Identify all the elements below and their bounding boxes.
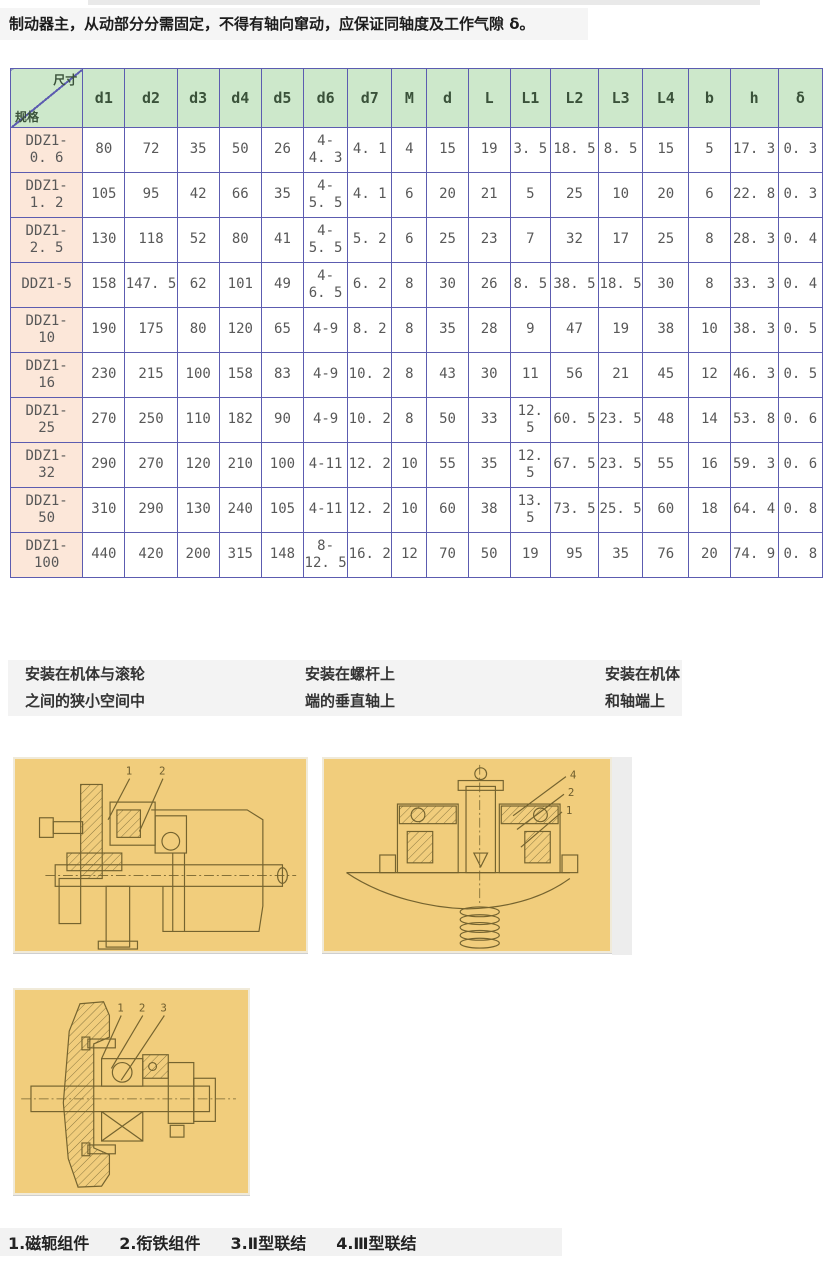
value-cell: 10. 2 <box>348 398 392 443</box>
column-header: d2 <box>125 69 177 128</box>
value-cell: 0. 4 <box>778 218 822 263</box>
value-cell: 315 <box>219 533 261 578</box>
value-cell: 10 <box>689 308 730 353</box>
caption-shaft-end: 安装在机体 和轴端上 <box>605 661 680 715</box>
spec-cell: DDZ1- 16 <box>11 353 83 398</box>
value-cell: 13. 5 <box>510 488 550 533</box>
value-cell: 21 <box>468 173 510 218</box>
value-cell: 190 <box>83 308 125 353</box>
value-cell: 80 <box>219 218 261 263</box>
spec-cell: DDZ1- 0. 6 <box>11 128 83 173</box>
column-header: d3 <box>177 69 219 128</box>
spec-cell: DDZ1- 32 <box>11 443 83 488</box>
value-cell: 110 <box>177 398 219 443</box>
value-cell: 215 <box>125 353 177 398</box>
value-cell: 11 <box>510 353 550 398</box>
value-cell: 48 <box>643 398 689 443</box>
column-header: L2 <box>550 69 598 128</box>
value-cell: 0. 6 <box>778 443 822 488</box>
value-cell: 158 <box>219 353 261 398</box>
value-cell: 38. 3 <box>730 308 778 353</box>
value-cell: 4- 5. 5 <box>304 173 348 218</box>
figure-shaft-end-mount: 1 2 3 <box>13 988 250 1195</box>
value-cell: 64. 4 <box>730 488 778 533</box>
value-cell: 5 <box>510 173 550 218</box>
caption-line: 和轴端上 <box>605 688 680 715</box>
value-cell: 158 <box>83 263 125 308</box>
value-cell: 8 <box>392 263 427 308</box>
value-cell: 76 <box>643 533 689 578</box>
value-cell: 22. 8 <box>730 173 778 218</box>
value-cell: 43 <box>427 353 468 398</box>
value-cell: 55 <box>427 443 468 488</box>
value-cell: 8 <box>392 308 427 353</box>
column-header: M <box>392 69 427 128</box>
value-cell: 16 <box>689 443 730 488</box>
value-cell: 8 <box>392 398 427 443</box>
technical-drawing-2: 4 2 1 <box>324 759 610 951</box>
value-cell: 6 <box>392 173 427 218</box>
figure1-label-2: 2 <box>159 765 165 778</box>
value-cell: 6 <box>392 218 427 263</box>
table-row: DDZ1-5158147. 562101494- 6. 56. 2830268.… <box>11 263 823 308</box>
value-cell: 19 <box>599 308 643 353</box>
value-cell: 10. 2 <box>348 353 392 398</box>
value-cell: 16. 2 <box>348 533 392 578</box>
value-cell: 35 <box>599 533 643 578</box>
value-cell: 53. 8 <box>730 398 778 443</box>
figure-roller-mount: 1 2 <box>13 757 308 953</box>
value-cell: 33. 3 <box>730 263 778 308</box>
value-cell: 182 <box>219 398 261 443</box>
value-cell: 17 <box>599 218 643 263</box>
column-header: L4 <box>643 69 689 128</box>
value-cell: 4 <box>392 128 427 173</box>
value-cell: 47 <box>550 308 598 353</box>
value-cell: 23. 5 <box>599 398 643 443</box>
value-cell: 10 <box>599 173 643 218</box>
dimension-table-wrap: 尺寸 规格 d1d2d3d4d5d6d7MdLL1L2L3L4bhδ DDZ1-… <box>10 68 823 578</box>
spec-cell: DDZ1- 25 <box>11 398 83 443</box>
value-cell: 12. 5 <box>510 398 550 443</box>
column-header: d5 <box>261 69 303 128</box>
figure-legend: 1.磁轭组件 2.衔铁组件 3.Ⅱ型联结 4.Ⅲ型联结 <box>0 1228 562 1256</box>
value-cell: 4. 1 <box>348 173 392 218</box>
value-cell: 4- 5. 5 <box>304 218 348 263</box>
table-row: DDZ1- 1019017580120654-98. 2835289471938… <box>11 308 823 353</box>
value-cell: 0. 8 <box>778 488 822 533</box>
table-row: DDZ1- 503102901302401054-1112. 210603813… <box>11 488 823 533</box>
value-cell: 38 <box>643 308 689 353</box>
value-cell: 90 <box>261 398 303 443</box>
value-cell: 12. 2 <box>348 443 392 488</box>
caption-roller-space: 安装在机体与滚轮 之间的狭小空间中 <box>25 661 145 715</box>
value-cell: 210 <box>219 443 261 488</box>
value-cell: 0. 3 <box>778 173 822 218</box>
value-cell: 38. 5 <box>550 263 598 308</box>
value-cell: 35 <box>468 443 510 488</box>
value-cell: 15 <box>643 128 689 173</box>
value-cell: 7 <box>510 218 550 263</box>
value-cell: 100 <box>177 353 219 398</box>
value-cell: 270 <box>125 443 177 488</box>
spec-cell: DDZ1-5 <box>11 263 83 308</box>
figure3-label-1: 1 <box>117 1002 123 1015</box>
value-cell: 74. 9 <box>730 533 778 578</box>
value-cell: 12. 5 <box>510 443 550 488</box>
column-header: L1 <box>510 69 550 128</box>
value-cell: 10 <box>392 488 427 533</box>
value-cell: 25 <box>643 218 689 263</box>
value-cell: 0. 6 <box>778 398 822 443</box>
value-cell: 83 <box>261 353 303 398</box>
value-cell: 8. 5 <box>599 128 643 173</box>
table-body: DDZ1- 0. 680723550264- 4. 34. 1415193. 5… <box>11 128 823 578</box>
value-cell: 25 <box>550 173 598 218</box>
column-header: δ <box>778 69 822 128</box>
value-cell: 59. 3 <box>730 443 778 488</box>
value-cell: 41 <box>261 218 303 263</box>
value-cell: 56 <box>550 353 598 398</box>
product-spec-page: 制动器主，从动部分分需固定，不得有轴向窜动，应保证同轴度及工作气隙 δ。 尺寸 … <box>0 0 825 1261</box>
figure2-label-4: 4 <box>570 769 576 782</box>
value-cell: 270 <box>83 398 125 443</box>
corner-header-cell: 尺寸 规格 <box>11 69 83 128</box>
value-cell: 8 <box>392 353 427 398</box>
value-cell: 60 <box>427 488 468 533</box>
value-cell: 26 <box>261 128 303 173</box>
value-cell: 25 <box>427 218 468 263</box>
value-cell: 33 <box>468 398 510 443</box>
value-cell: 5. 2 <box>348 218 392 263</box>
value-cell: 73. 5 <box>550 488 598 533</box>
value-cell: 4. 1 <box>348 128 392 173</box>
value-cell: 35 <box>427 308 468 353</box>
value-cell: 32 <box>550 218 598 263</box>
value-cell: 66 <box>219 173 261 218</box>
value-cell: 0. 5 <box>778 308 822 353</box>
table-row: DDZ1- 0. 680723550264- 4. 34. 1415193. 5… <box>11 128 823 173</box>
value-cell: 23. 5 <box>599 443 643 488</box>
value-cell: 15 <box>427 128 468 173</box>
value-cell: 80 <box>83 128 125 173</box>
figure1-label-1: 1 <box>126 765 132 778</box>
value-cell: 0. 8 <box>778 533 822 578</box>
value-cell: 25. 5 <box>599 488 643 533</box>
value-cell: 105 <box>83 173 125 218</box>
value-cell: 50 <box>468 533 510 578</box>
value-cell: 420 <box>125 533 177 578</box>
value-cell: 101 <box>219 263 261 308</box>
value-cell: 290 <box>125 488 177 533</box>
value-cell: 440 <box>83 533 125 578</box>
spec-cell: DDZ1- 50 <box>11 488 83 533</box>
value-cell: 30 <box>643 263 689 308</box>
dimension-table: 尺寸 规格 d1d2d3d4d5d6d7MdLL1L2L3L4bhδ DDZ1-… <box>10 68 823 578</box>
value-cell: 310 <box>83 488 125 533</box>
value-cell: 35 <box>177 128 219 173</box>
table-row: DDZ1- 1. 2105954266354- 5. 54. 162021525… <box>11 173 823 218</box>
value-cell: 60 <box>643 488 689 533</box>
value-cell: 3. 5 <box>510 128 550 173</box>
value-cell: 118 <box>125 218 177 263</box>
value-cell: 120 <box>219 308 261 353</box>
corner-label-spec: 规格 <box>15 108 39 125</box>
value-cell: 38 <box>468 488 510 533</box>
value-cell: 19 <box>468 128 510 173</box>
value-cell: 26 <box>468 263 510 308</box>
value-cell: 4-11 <box>304 443 348 488</box>
spec-cell: DDZ1- 2. 5 <box>11 218 83 263</box>
value-cell: 4- 6. 5 <box>304 263 348 308</box>
figure3-label-3: 3 <box>160 1002 166 1015</box>
top-divider <box>88 0 760 5</box>
value-cell: 5 <box>689 128 730 173</box>
intro-text: 制动器主，从动部分分需固定，不得有轴向窜动，应保证同轴度及工作气隙 δ。 <box>0 8 588 40</box>
caption-line: 之间的狭小空间中 <box>25 688 145 715</box>
column-header: d <box>427 69 468 128</box>
value-cell: 55 <box>643 443 689 488</box>
value-cell: 20 <box>689 533 730 578</box>
column-header: L3 <box>599 69 643 128</box>
value-cell: 4-11 <box>304 488 348 533</box>
value-cell: 50 <box>427 398 468 443</box>
legend-item-yoke: 1.磁轭组件 <box>8 1230 89 1254</box>
column-header: d1 <box>83 69 125 128</box>
value-cell: 0. 4 <box>778 263 822 308</box>
value-cell: 0. 3 <box>778 128 822 173</box>
value-cell: 250 <box>125 398 177 443</box>
value-cell: 130 <box>177 488 219 533</box>
legend-item-armature: 2.衔铁组件 <box>119 1230 200 1254</box>
value-cell: 18. 5 <box>599 263 643 308</box>
value-cell: 8- 12. 5 <box>304 533 348 578</box>
value-cell: 8 <box>689 263 730 308</box>
value-cell: 30 <box>427 263 468 308</box>
technical-drawing-1: 1 2 <box>15 759 306 951</box>
value-cell: 95 <box>125 173 177 218</box>
value-cell: 105 <box>261 488 303 533</box>
value-cell: 70 <box>427 533 468 578</box>
value-cell: 50 <box>219 128 261 173</box>
value-cell: 30 <box>468 353 510 398</box>
value-cell: 12. 2 <box>348 488 392 533</box>
value-cell: 175 <box>125 308 177 353</box>
value-cell: 130 <box>83 218 125 263</box>
column-header: L <box>468 69 510 128</box>
value-cell: 4-9 <box>304 398 348 443</box>
value-cell: 200 <box>177 533 219 578</box>
table-row: DDZ1- 2. 51301185280414- 5. 55. 26252373… <box>11 218 823 263</box>
value-cell: 0. 5 <box>778 353 822 398</box>
value-cell: 72 <box>125 128 177 173</box>
value-cell: 35 <box>261 173 303 218</box>
header-row: 尺寸 规格 d1d2d3d4d5d6d7MdLL1L2L3L4bhδ <box>11 69 823 128</box>
figure3-label-2: 2 <box>139 1002 145 1015</box>
value-cell: 8. 5 <box>510 263 550 308</box>
table-row: DDZ1- 322902701202101004-1112. 210553512… <box>11 443 823 488</box>
value-cell: 65 <box>261 308 303 353</box>
figure2-label-1: 1 <box>566 804 572 817</box>
value-cell: 28 <box>468 308 510 353</box>
value-cell: 4-9 <box>304 353 348 398</box>
value-cell: 147. 5 <box>125 263 177 308</box>
caption-line: 安装在螺杆上 <box>305 661 395 688</box>
caption-line: 安装在机体与滚轮 <box>25 661 145 688</box>
technical-drawing-3: 1 2 3 <box>15 990 248 1193</box>
value-cell: 62 <box>177 263 219 308</box>
figure2-label-2: 2 <box>568 786 574 799</box>
value-cell: 28. 3 <box>730 218 778 263</box>
value-cell: 18 <box>689 488 730 533</box>
column-header: d4 <box>219 69 261 128</box>
value-cell: 20 <box>643 173 689 218</box>
value-cell: 23 <box>468 218 510 263</box>
legend-item-type3: 4.Ⅲ型联结 <box>336 1230 416 1254</box>
value-cell: 12 <box>392 533 427 578</box>
figure-screw-mount: 4 2 1 <box>322 757 612 953</box>
caption-line: 端的垂直轴上 <box>305 688 395 715</box>
value-cell: 17. 3 <box>730 128 778 173</box>
value-cell: 46. 3 <box>730 353 778 398</box>
table-row: DDZ1- 25270250110182904-910. 28503312. 5… <box>11 398 823 443</box>
value-cell: 6. 2 <box>348 263 392 308</box>
value-cell: 19 <box>510 533 550 578</box>
legend-item-type2: 3.Ⅱ型联结 <box>230 1230 306 1254</box>
value-cell: 120 <box>177 443 219 488</box>
spec-cell: DDZ1- 1. 2 <box>11 173 83 218</box>
value-cell: 45 <box>643 353 689 398</box>
value-cell: 95 <box>550 533 598 578</box>
value-cell: 18. 5 <box>550 128 598 173</box>
value-cell: 9 <box>510 308 550 353</box>
value-cell: 10 <box>392 443 427 488</box>
value-cell: 14 <box>689 398 730 443</box>
value-cell: 21 <box>599 353 643 398</box>
value-cell: 42 <box>177 173 219 218</box>
value-cell: 230 <box>83 353 125 398</box>
column-header: b <box>689 69 730 128</box>
value-cell: 100 <box>261 443 303 488</box>
column-header: h <box>730 69 778 128</box>
table-row: DDZ1- 1004404202003151488- 12. 516. 2127… <box>11 533 823 578</box>
spec-cell: DDZ1- 10 <box>11 308 83 353</box>
value-cell: 8. 2 <box>348 308 392 353</box>
corner-label-size: 尺寸 <box>53 71 77 88</box>
value-cell: 290 <box>83 443 125 488</box>
value-cell: 67. 5 <box>550 443 598 488</box>
value-cell: 52 <box>177 218 219 263</box>
value-cell: 240 <box>219 488 261 533</box>
table-row: DDZ1- 16230215100158834-910. 28433011562… <box>11 353 823 398</box>
figure-side-strip <box>612 757 632 955</box>
value-cell: 8 <box>689 218 730 263</box>
value-cell: 12 <box>689 353 730 398</box>
value-cell: 4-9 <box>304 308 348 353</box>
value-cell: 6 <box>689 173 730 218</box>
caption-line: 安装在机体 <box>605 661 680 688</box>
column-header: d7 <box>348 69 392 128</box>
column-header: d6 <box>304 69 348 128</box>
value-cell: 4- 4. 3 <box>304 128 348 173</box>
value-cell: 20 <box>427 173 468 218</box>
spec-cell: DDZ1- 100 <box>11 533 83 578</box>
value-cell: 60. 5 <box>550 398 598 443</box>
value-cell: 80 <box>177 308 219 353</box>
value-cell: 49 <box>261 263 303 308</box>
value-cell: 148 <box>261 533 303 578</box>
caption-screw-shaft: 安装在螺杆上 端的垂直轴上 <box>305 661 395 715</box>
